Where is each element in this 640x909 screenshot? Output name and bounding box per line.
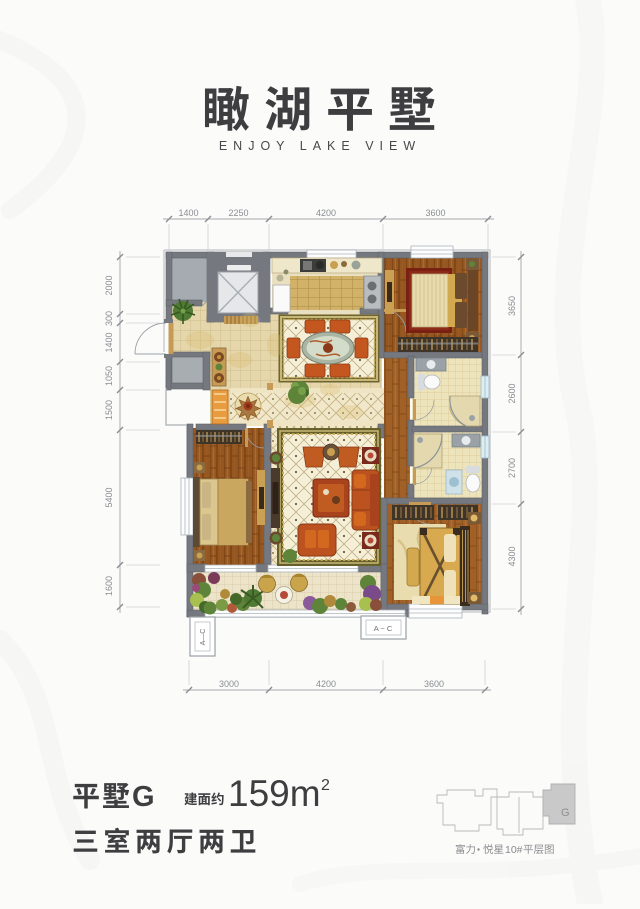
svg-text:1500: 1500 <box>104 400 114 420</box>
svg-text:G: G <box>561 807 570 819</box>
svg-text:2: 2 <box>321 777 330 794</box>
svg-text:1400: 1400 <box>104 332 114 352</box>
svg-text:3600: 3600 <box>425 208 445 218</box>
svg-text:3600: 3600 <box>424 679 444 689</box>
svg-text:ENJOY LAKE VIEW: ENJOY LAKE VIEW <box>219 139 421 153</box>
svg-text:300: 300 <box>104 311 114 326</box>
svg-text:159m: 159m <box>228 773 321 814</box>
svg-text:G: G <box>132 781 155 813</box>
svg-text:1400: 1400 <box>178 208 198 218</box>
svg-text:5400: 5400 <box>104 487 114 507</box>
svg-text:A ~ C: A ~ C <box>374 624 393 633</box>
svg-text:3000: 3000 <box>219 679 239 689</box>
svg-text:2000: 2000 <box>104 275 114 295</box>
svg-text:4200: 4200 <box>316 679 336 689</box>
svg-text:A—C: A—C <box>200 629 207 646</box>
svg-text:1600: 1600 <box>104 576 114 596</box>
svg-text:2700: 2700 <box>507 458 517 478</box>
svg-text:2250: 2250 <box>228 208 248 218</box>
svg-text:2600: 2600 <box>507 383 517 403</box>
svg-text:4200: 4200 <box>316 208 336 218</box>
svg-text:1050: 1050 <box>104 366 114 386</box>
svg-text:4300: 4300 <box>507 546 517 566</box>
svg-text:10#: 10# <box>505 844 523 856</box>
svg-text:3650: 3650 <box>507 296 517 316</box>
